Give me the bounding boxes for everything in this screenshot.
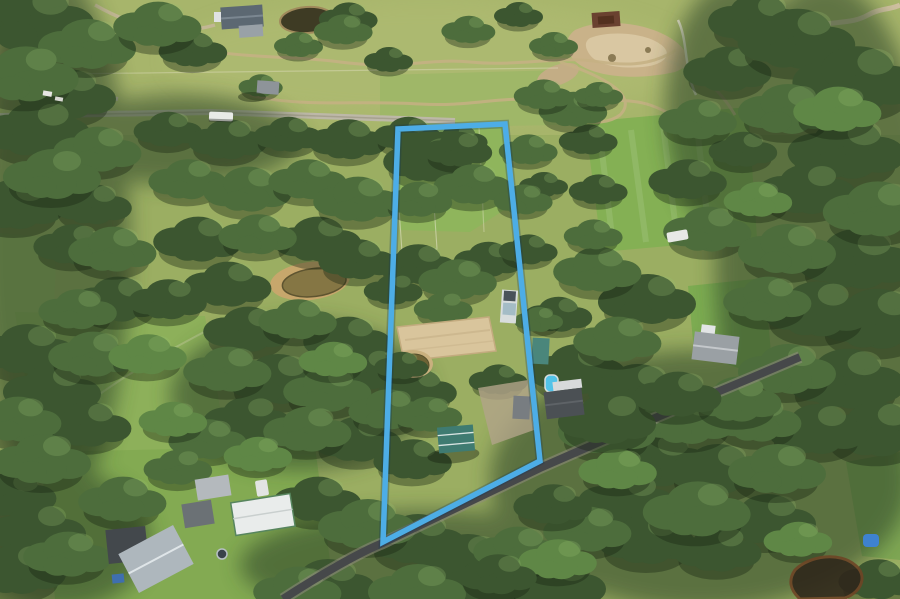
green-roof-shed <box>437 424 475 453</box>
bottom-right-pond <box>791 557 862 599</box>
small-house-north <box>257 80 280 95</box>
top-left-house-annex <box>214 12 221 22</box>
neighbour-green-shed <box>531 338 549 365</box>
lone-tree-shadow <box>238 92 266 102</box>
trampoline <box>217 549 227 559</box>
blue-tent <box>863 534 879 547</box>
top-left-shed <box>239 24 264 38</box>
blue-tarp <box>112 573 125 583</box>
aerial-photo <box>0 0 900 599</box>
grey-shed <box>512 396 530 420</box>
aerial-photo-canvas <box>0 0 900 599</box>
caravan <box>255 479 269 497</box>
grey-shed-sw <box>181 500 214 528</box>
solar-panels <box>503 291 516 302</box>
